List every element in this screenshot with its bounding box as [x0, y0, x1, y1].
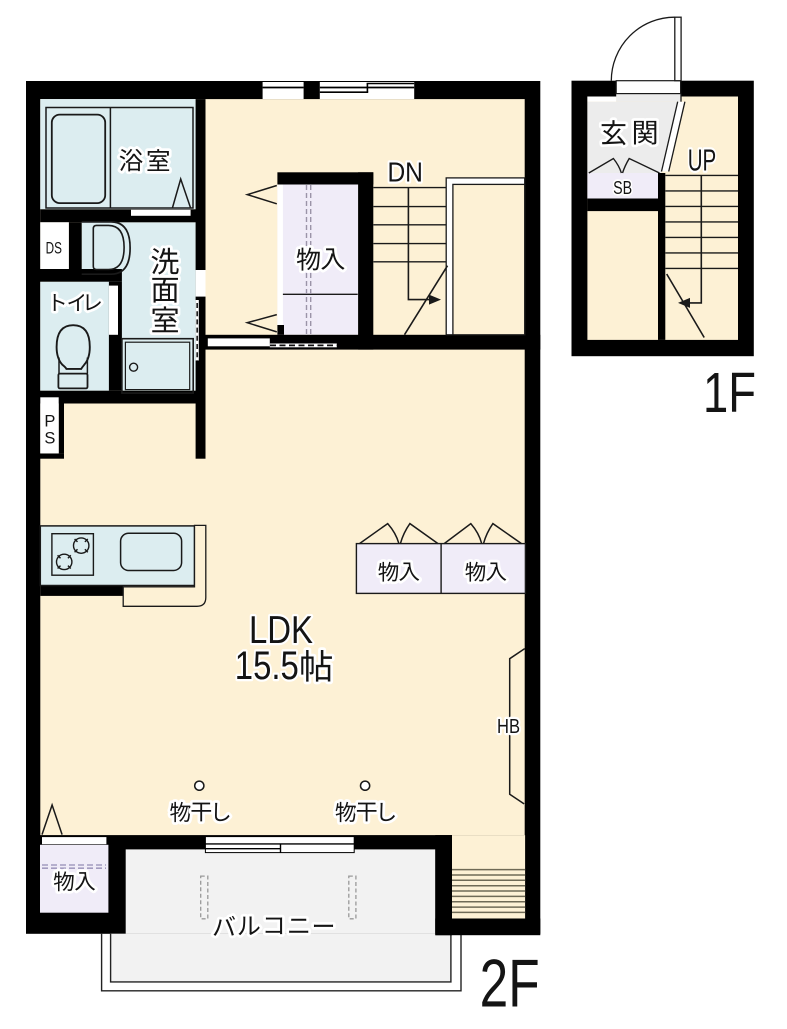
- svg-text:2F: 2F: [480, 946, 540, 1022]
- svg-text:15.5: 15.5: [235, 644, 299, 688]
- svg-text:DN: DN: [387, 157, 423, 188]
- svg-text:DS: DS: [46, 239, 62, 257]
- svg-text:S: S: [44, 430, 55, 448]
- svg-text:SB: SB: [613, 178, 632, 198]
- svg-text:P: P: [44, 413, 55, 431]
- svg-text:1F: 1F: [703, 361, 756, 425]
- svg-text:HB: HB: [497, 716, 520, 738]
- svg-text:UP: UP: [688, 143, 717, 178]
